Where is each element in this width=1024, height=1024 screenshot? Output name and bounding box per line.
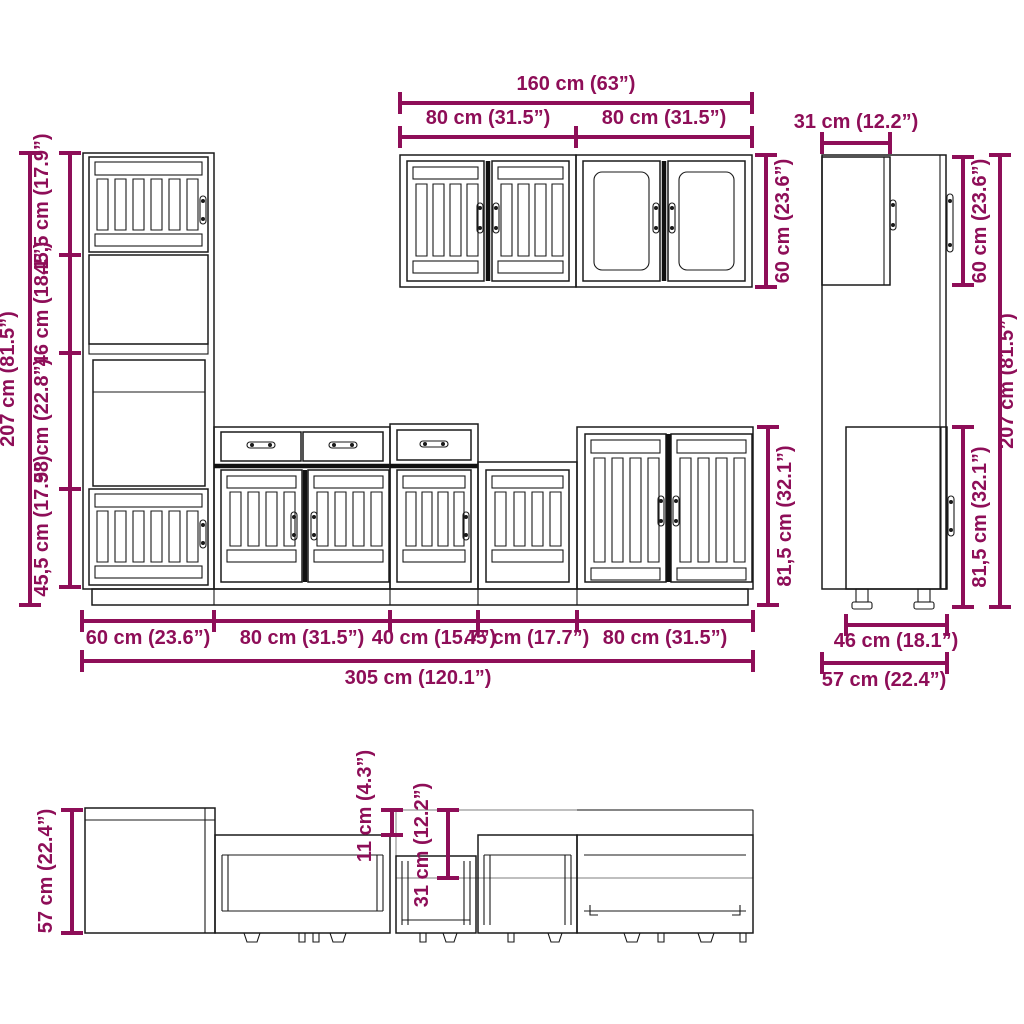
door-handle: [200, 520, 206, 548]
diagram-canvas: 207 cm (81.5”) 45,5 cm (17.9”) 46 cm (18…: [0, 0, 1024, 1024]
label-tall-open-shelf: 46 cm (18.1”): [31, 242, 53, 367]
label-side-total-depth: 57 cm (22.4”): [822, 669, 947, 691]
door-handle: [200, 196, 206, 224]
door-handle: [311, 512, 317, 540]
door-handle: [493, 203, 499, 233]
side-view: [822, 155, 954, 609]
label-side-base-depth: 46 cm (18.1”): [834, 630, 959, 652]
cabinet-feet: [244, 933, 746, 942]
door-handle: [947, 194, 953, 252]
dim-top-offset: [381, 810, 403, 835]
label-top-depth: 57 cm (22.4”): [35, 809, 57, 934]
label-wall-height-front: 60 cm (23.6”): [772, 159, 794, 284]
front-view-base-cabinet-80-doors: [577, 427, 753, 589]
dim-top-wall-depth: [437, 810, 459, 878]
door-handle: [669, 203, 675, 233]
label-width-base-80-right: 80 cm (31.5”): [603, 627, 728, 649]
label-tall-bottom-door: 45,5 cm (17.9”): [31, 455, 53, 596]
dim-wall-widths: [400, 126, 752, 148]
label-side-total-height: 207 cm (81.5”): [996, 313, 1018, 449]
door-handle: [291, 512, 297, 540]
drawer-handle: [420, 441, 448, 447]
label-wall-right-width: 80 cm (31.5”): [602, 107, 727, 129]
dim-side-wall-depth: [822, 132, 890, 154]
front-view-base-cabinet-40: [390, 424, 478, 589]
label-width-base-45: 45 cm (17.7”): [465, 627, 590, 649]
label-side-base-height: 81,5 cm (32.1”): [969, 446, 991, 587]
label-tall-total-height: 207 cm (81.5”): [0, 311, 19, 447]
front-view-plinth: [92, 589, 748, 605]
drawer-handle: [247, 442, 275, 448]
label-total-width: 305 cm (120.1”): [345, 667, 492, 689]
front-view-tall-cabinet: [83, 153, 214, 589]
dimension-lines: [19, 92, 1011, 933]
label-width-base-80-left: 80 cm (31.5”): [240, 627, 365, 649]
door-handle: [653, 203, 659, 233]
door-handle: [890, 200, 896, 230]
front-view-wall-cabinet-80-slat: [400, 155, 576, 287]
label-wall-left-width: 80 cm (31.5”): [426, 107, 551, 129]
label-side-wall-height: 60 cm (23.6”): [969, 159, 991, 284]
dimension-labels: 207 cm (81.5”) 45,5 cm (17.9”) 46 cm (18…: [0, 73, 1018, 933]
dim-tall-sections: [59, 153, 81, 587]
kitchen-dimension-diagram: 207 cm (81.5”) 45,5 cm (17.9”) 46 cm (18…: [0, 0, 1024, 1024]
front-view-base-cabinet-80-drawers: [214, 427, 390, 589]
label-side-wall-depth: 31 cm (12.2”): [794, 111, 919, 133]
label-top-offset: 11 cm (4.3”): [354, 750, 376, 862]
label-wall-total-width: 160 cm (63”): [517, 73, 636, 95]
front-view-sink-cabinet-45: [478, 462, 577, 589]
label-width-tall: 60 cm (23.6”): [86, 627, 211, 649]
label-base-height-front: 81,5 cm (32.1”): [774, 445, 796, 586]
door-handle: [673, 496, 679, 526]
drawer-handle: [329, 442, 357, 448]
cabinet-legs: [852, 589, 934, 609]
label-top-wall-depth: 31 cm (12.2”): [411, 783, 433, 908]
door-handle: [948, 496, 954, 536]
front-view-wall-cabinet-80-panel: [576, 155, 752, 287]
dim-top-depth: [61, 810, 83, 933]
